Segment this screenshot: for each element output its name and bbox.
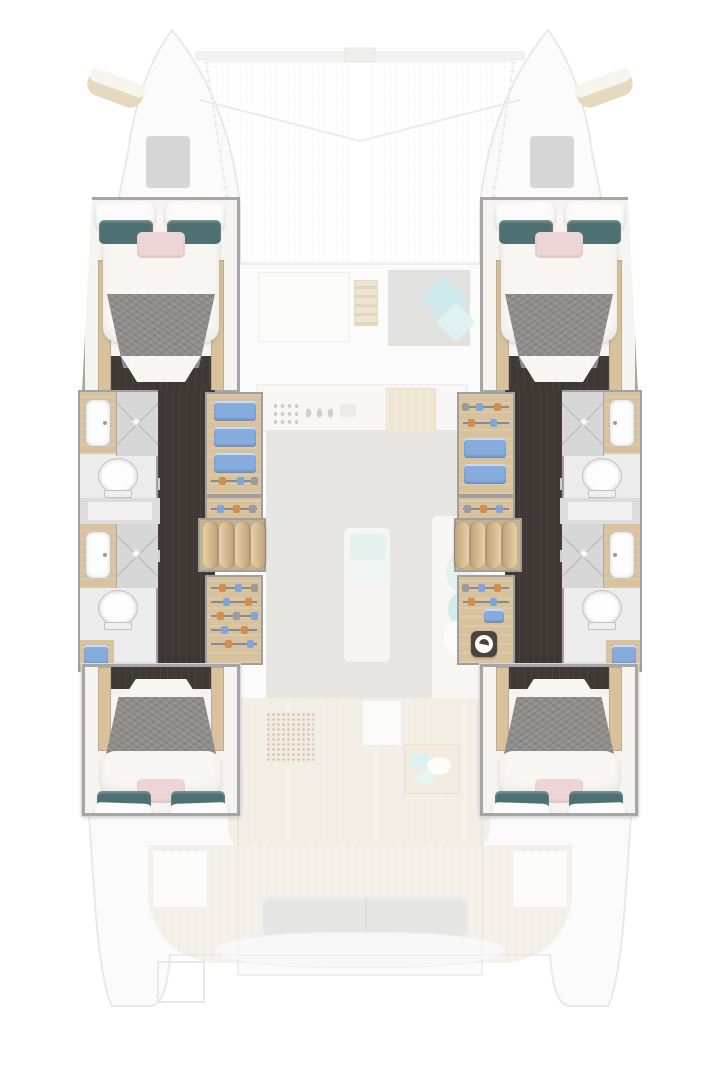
- sink: [85, 531, 111, 579]
- salon-mini-shelf: [362, 700, 402, 746]
- hanger-rail: [211, 629, 257, 631]
- hanger-rail: [211, 480, 257, 482]
- pillow: [491, 802, 552, 816]
- toilet-tank: [104, 622, 132, 630]
- toilet-tank: [104, 490, 132, 498]
- step-tread: [235, 522, 249, 568]
- toilet: [582, 458, 622, 494]
- hull-window-band: [80, 498, 160, 524]
- stove-knobs: [303, 404, 335, 422]
- sink: [609, 399, 635, 447]
- forward-berth: [258, 272, 350, 342]
- step-tread: [219, 522, 233, 568]
- hanger-rail: [211, 615, 257, 617]
- companionway-steps: [454, 518, 522, 572]
- cockpit-table: [214, 932, 506, 968]
- companionway-steps: [198, 518, 266, 572]
- towel: [214, 453, 256, 473]
- step-tread: [471, 522, 485, 568]
- sparkle-icon: ✦: [579, 548, 589, 560]
- cockpit-bench-starboard: [512, 850, 568, 908]
- mint-cushion: [350, 562, 386, 584]
- pink-cushion: [535, 232, 583, 258]
- mint-cushion: [350, 534, 386, 560]
- towel: [464, 438, 506, 458]
- aft-port-cabin: [82, 664, 240, 816]
- wood-trim: [609, 667, 622, 751]
- starboard-hull-midsection: ✦ ✦: [452, 390, 642, 672]
- bed-blanket: [105, 697, 217, 759]
- galley-control: [340, 404, 356, 417]
- wardrobe: [205, 575, 263, 665]
- towel-shelf-unit: [457, 392, 515, 496]
- hanger-rail: [211, 643, 257, 645]
- sparkle-icon: ✦: [131, 416, 141, 428]
- control-panel: [354, 280, 378, 326]
- towel: [84, 645, 108, 665]
- starboard-heads-column: ✦ ✦: [562, 390, 642, 672]
- sink: [609, 531, 635, 579]
- toilet: [98, 590, 138, 626]
- aft-starboard-cabin: [480, 664, 638, 816]
- port-heads-column: ✦ ✦: [78, 390, 158, 672]
- sparkle-icon: ✦: [579, 416, 589, 428]
- wood-trim: [496, 667, 509, 751]
- wood-trim: [211, 667, 224, 751]
- catamaran-floorplan: ✦ ✦: [0, 0, 720, 1080]
- hanger-rail: [463, 422, 509, 424]
- coffee-table: [404, 744, 460, 794]
- shower: ✦: [562, 392, 604, 456]
- toilet-tank: [588, 490, 616, 498]
- mint-plate: [415, 771, 435, 785]
- hanger-rail: [463, 601, 509, 603]
- hanger-rail: [211, 587, 257, 589]
- step-tread: [487, 522, 501, 568]
- sink: [85, 399, 111, 447]
- port-hull-midsection: ✦ ✦: [78, 390, 268, 672]
- towel: [214, 401, 256, 421]
- towel: [464, 464, 506, 484]
- hanger-rail: [211, 601, 257, 603]
- wood-trim: [98, 667, 111, 751]
- stove-burners: [272, 402, 300, 426]
- towel: [612, 645, 636, 665]
- step-tread: [455, 522, 469, 568]
- pillow: [169, 802, 230, 816]
- step-tread: [251, 522, 265, 568]
- towel: [484, 609, 504, 623]
- toilet-tank: [588, 622, 616, 630]
- toilet: [582, 590, 622, 626]
- hanger-rail: [211, 508, 257, 510]
- step-tread: [503, 522, 517, 568]
- forward-port-cabin: [82, 197, 240, 393]
- dotted-mat: [266, 712, 314, 762]
- hanger-rail: [463, 508, 509, 510]
- sparkle-icon: ✦: [131, 548, 141, 560]
- pink-cushion: [137, 232, 185, 258]
- step-tread: [203, 522, 217, 568]
- pillow: [93, 802, 154, 816]
- shower: ✦: [562, 524, 604, 588]
- pillow: [567, 802, 628, 816]
- shower: ✦: [116, 392, 158, 456]
- hanger-rail: [463, 406, 509, 408]
- bed-blanket: [503, 697, 615, 759]
- hull-window-band: [560, 498, 640, 524]
- cockpit-sofa: [262, 894, 468, 936]
- cockpit-bench-port: [152, 850, 208, 908]
- towel: [214, 427, 256, 447]
- hanger-rail: [463, 587, 509, 589]
- towel-shelf-unit: [205, 392, 263, 496]
- forward-starboard-cabin: [480, 197, 638, 393]
- shower: ✦: [116, 524, 158, 588]
- toilet: [98, 458, 138, 494]
- washing-machine-icon: [471, 631, 497, 657]
- utility-locker: [457, 575, 515, 665]
